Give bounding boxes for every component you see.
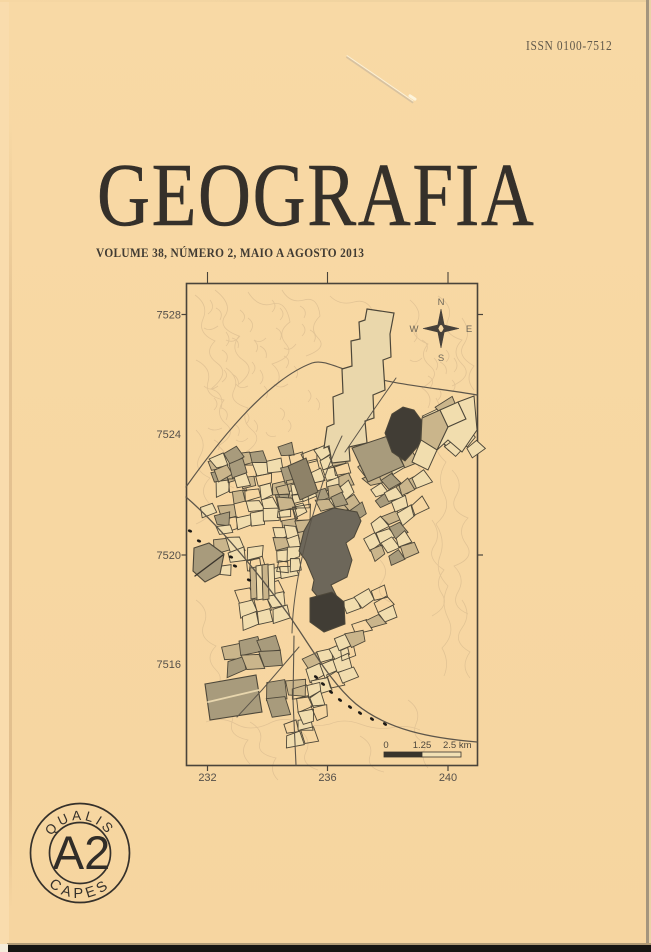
- svg-text:A2: A2: [53, 826, 111, 879]
- svg-text:7520: 7520: [157, 550, 181, 562]
- svg-text:CAPES: CAPES: [46, 876, 114, 902]
- svg-text:240: 240: [439, 772, 457, 784]
- svg-text:W: W: [410, 324, 419, 335]
- svg-text:232: 232: [198, 772, 216, 784]
- svg-text:7524: 7524: [157, 429, 181, 441]
- svg-text:E: E: [466, 324, 472, 335]
- svg-text:236: 236: [318, 772, 336, 784]
- svg-text:7516: 7516: [157, 659, 181, 671]
- svg-text:2.5 km: 2.5 km: [443, 740, 472, 751]
- svg-text:0: 0: [383, 740, 388, 751]
- svg-text:N: N: [438, 297, 445, 308]
- svg-text:7528: 7528: [157, 310, 181, 322]
- svg-text:S: S: [438, 353, 444, 364]
- svg-text:1.25: 1.25: [413, 740, 432, 751]
